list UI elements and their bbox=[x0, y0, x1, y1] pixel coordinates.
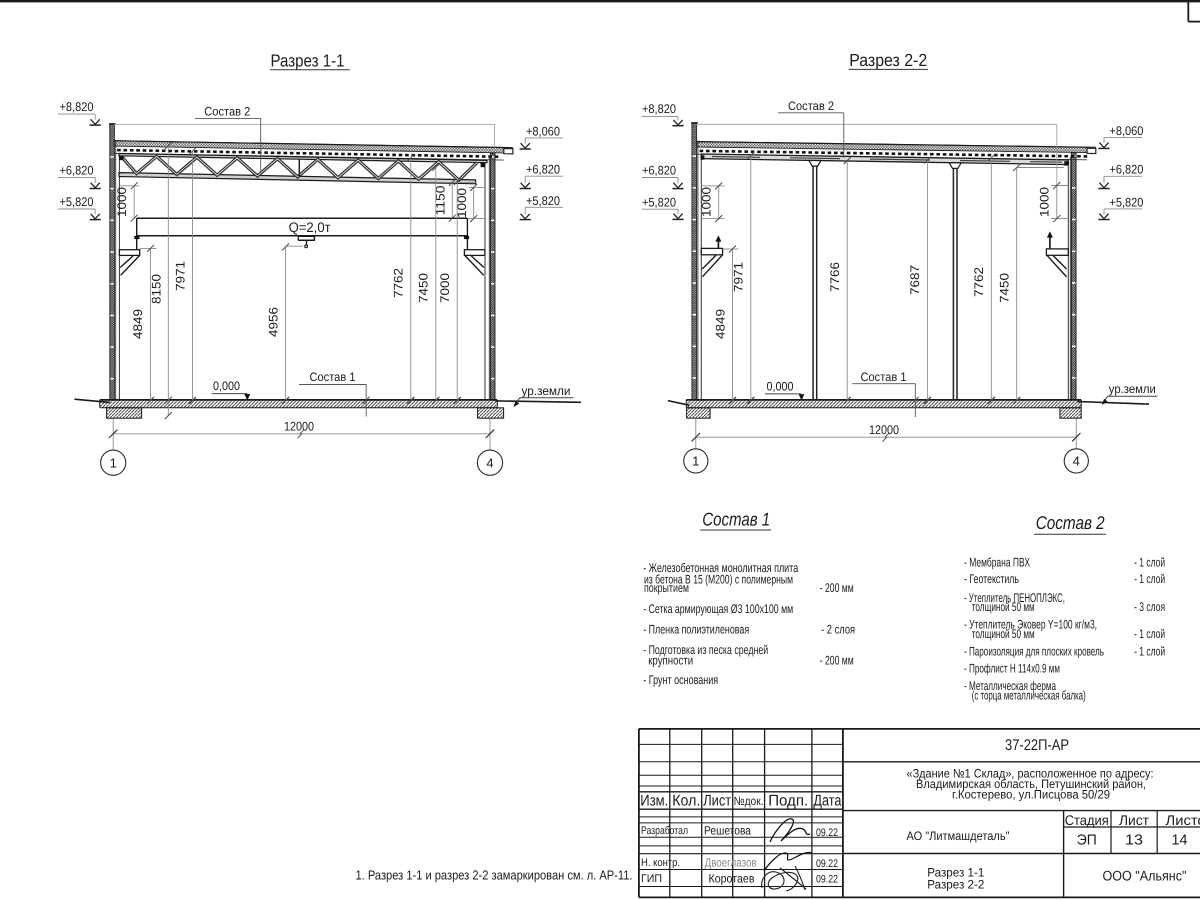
svg-text:- Пароизоляция для плоских кро: - Пароизоляция для плоских кровель bbox=[964, 645, 1104, 659]
svg-text:+5,820: +5,820 bbox=[526, 194, 560, 208]
svg-text:Листов: Листов bbox=[1166, 812, 1200, 828]
svg-text:- Геотекстиль: - Геотекстиль bbox=[964, 572, 1019, 586]
svg-text:1000: 1000 bbox=[699, 187, 713, 217]
svg-text:Состав 2: Состав 2 bbox=[1036, 512, 1106, 533]
svg-text:- 1 слой: - 1 слой bbox=[1134, 572, 1165, 586]
svg-text:8150: 8150 bbox=[149, 274, 163, 304]
svg-text:1: 1 bbox=[692, 454, 699, 469]
svg-text:7450: 7450 bbox=[998, 273, 1012, 303]
svg-text:Состав 1: Состав 1 bbox=[861, 370, 907, 384]
svg-text:Н. контр.: Н. контр. bbox=[641, 857, 680, 869]
svg-text:13: 13 bbox=[1125, 833, 1143, 849]
svg-text:4: 4 bbox=[486, 455, 493, 470]
svg-text:0,000: 0,000 bbox=[213, 379, 240, 393]
svg-text:7971: 7971 bbox=[732, 262, 746, 292]
svg-text:1000: 1000 bbox=[115, 187, 129, 217]
svg-text:Состав 2: Состав 2 bbox=[204, 105, 250, 119]
svg-text:1. Разрез 1-1 и разрез 2-2 зам: 1. Разрез 1-1 и разрез 2-2 замаркирован … bbox=[356, 868, 633, 883]
svg-text:- Пленка полиэтиленовая: - Пленка полиэтиленовая bbox=[643, 623, 749, 637]
svg-text:1: 1 bbox=[110, 455, 117, 470]
svg-text:09.22: 09.22 bbox=[816, 858, 838, 870]
svg-text:7971: 7971 bbox=[173, 261, 187, 291]
svg-text:- 3 слоя: - 3 слоя bbox=[1134, 600, 1165, 614]
svg-text:толщиной 50 мм: толщиной 50 мм bbox=[972, 627, 1035, 641]
svg-text:4: 4 bbox=[1073, 454, 1080, 469]
svg-text:+5,820: +5,820 bbox=[60, 195, 94, 209]
svg-text:- Профлист Н 114х0.9 мм: - Профлист Н 114х0.9 мм bbox=[964, 662, 1060, 676]
svg-text:+6,820: +6,820 bbox=[60, 163, 94, 177]
svg-text:- 200 мм: - 200 мм bbox=[820, 653, 854, 667]
svg-text:ЭП: ЭП bbox=[1077, 833, 1097, 849]
svg-text:Двоеглазов: Двоеглазов bbox=[705, 856, 757, 870]
svg-text:37-22П-АР: 37-22П-АР bbox=[1005, 737, 1069, 754]
svg-text:Разрез 1-1: Разрез 1-1 bbox=[271, 51, 345, 71]
svg-text:7687: 7687 bbox=[908, 265, 922, 295]
svg-text:+8,820: +8,820 bbox=[642, 102, 676, 116]
svg-text:Кол.: Кол. bbox=[672, 793, 700, 810]
svg-text:№док.: №док. bbox=[734, 794, 764, 808]
svg-text:- Сетка армирующая Ø3 100х100: - Сетка армирующая Ø3 100х100 мм bbox=[643, 602, 793, 616]
svg-text:Разрез 2-2: Разрез 2-2 bbox=[849, 50, 927, 70]
svg-text:0,000: 0,000 bbox=[767, 380, 794, 394]
svg-text:- Мембрана ПВХ: - Мембрана ПВХ bbox=[964, 556, 1030, 570]
svg-text:- 1 слой: - 1 слой bbox=[1134, 645, 1165, 659]
svg-text:7762: 7762 bbox=[392, 268, 406, 298]
svg-text:Разрез 2-2: Разрез 2-2 bbox=[927, 877, 984, 891]
svg-text:Лист: Лист bbox=[1119, 812, 1150, 828]
svg-text:(с торца металлическая балка): (с торца металлическая балка) bbox=[972, 688, 1086, 702]
svg-text:Состав 1: Состав 1 bbox=[310, 370, 356, 384]
svg-text:4849: 4849 bbox=[713, 309, 727, 339]
svg-text:ГИП: ГИП bbox=[641, 873, 662, 885]
svg-text:- 1 слой: - 1 слой bbox=[1134, 627, 1165, 641]
svg-text:+6,820: +6,820 bbox=[642, 164, 676, 178]
svg-text:4956: 4956 bbox=[266, 307, 280, 337]
svg-text:толщиной 50 мм: толщиной 50 мм bbox=[972, 600, 1035, 614]
svg-text:ур.земли: ур.земли bbox=[522, 384, 571, 398]
svg-text:ур.земли: ур.земли bbox=[1109, 382, 1156, 396]
svg-text:ООО "Альянс": ООО "Альянс" bbox=[1103, 868, 1187, 884]
svg-text:12000: 12000 bbox=[284, 420, 314, 434]
svg-text:+6,820: +6,820 bbox=[526, 163, 560, 177]
svg-text:АО "Литмашдеталь": АО "Литмашдеталь" bbox=[907, 829, 1010, 843]
svg-text:Коротаев: Коротаев bbox=[709, 871, 755, 885]
svg-text:Q=2,0т: Q=2,0т bbox=[289, 220, 332, 235]
svg-text:7766: 7766 bbox=[828, 262, 842, 292]
svg-text:Состав 1: Состав 1 bbox=[702, 509, 770, 530]
svg-text:+8,060: +8,060 bbox=[1109, 124, 1143, 138]
svg-text:1000: 1000 bbox=[1037, 187, 1051, 217]
svg-text:+8,060: +8,060 bbox=[526, 124, 560, 138]
svg-text:12000: 12000 bbox=[869, 423, 899, 437]
svg-text:покрытием: покрытием bbox=[644, 581, 689, 595]
svg-text:Лист: Лист bbox=[703, 793, 731, 810]
svg-text:г.Костерево, ул.Писцова 50/29: г.Костерево, ул.Писцова 50/29 bbox=[952, 787, 1110, 801]
svg-text:- 2 слоя: - 2 слоя bbox=[821, 623, 855, 637]
svg-text:+5,820: +5,820 bbox=[1109, 195, 1143, 209]
svg-text:Стадия: Стадия bbox=[1065, 812, 1109, 828]
svg-text:- Грунт основания: - Грунт основания bbox=[643, 673, 718, 687]
svg-text:14: 14 bbox=[1172, 833, 1188, 849]
svg-text:+5,820: +5,820 bbox=[642, 195, 676, 209]
svg-text:Дата: Дата bbox=[813, 793, 841, 810]
svg-text:Изм.: Изм. bbox=[640, 793, 668, 810]
svg-text:Состав 2: Состав 2 bbox=[788, 99, 834, 113]
svg-text:Решетова: Решетова bbox=[704, 824, 751, 838]
svg-text:7000: 7000 bbox=[438, 273, 452, 303]
svg-text:Разработал: Разработал bbox=[641, 825, 688, 837]
svg-text:+8,820: +8,820 bbox=[60, 100, 94, 114]
svg-text:крупности: крупности bbox=[648, 653, 693, 667]
svg-text:7450: 7450 bbox=[417, 273, 431, 303]
svg-text:+6,820: +6,820 bbox=[1109, 163, 1143, 177]
svg-text:- 1 слой: - 1 слой bbox=[1134, 556, 1165, 570]
svg-text:4849: 4849 bbox=[131, 309, 145, 339]
svg-text:- 200 мм: - 200 мм bbox=[820, 581, 854, 595]
svg-text:09.22: 09.22 bbox=[816, 827, 838, 839]
svg-text:09.22: 09.22 bbox=[816, 874, 838, 886]
svg-text:7762: 7762 bbox=[972, 267, 986, 297]
svg-text:Подп.: Подп. bbox=[768, 793, 808, 810]
